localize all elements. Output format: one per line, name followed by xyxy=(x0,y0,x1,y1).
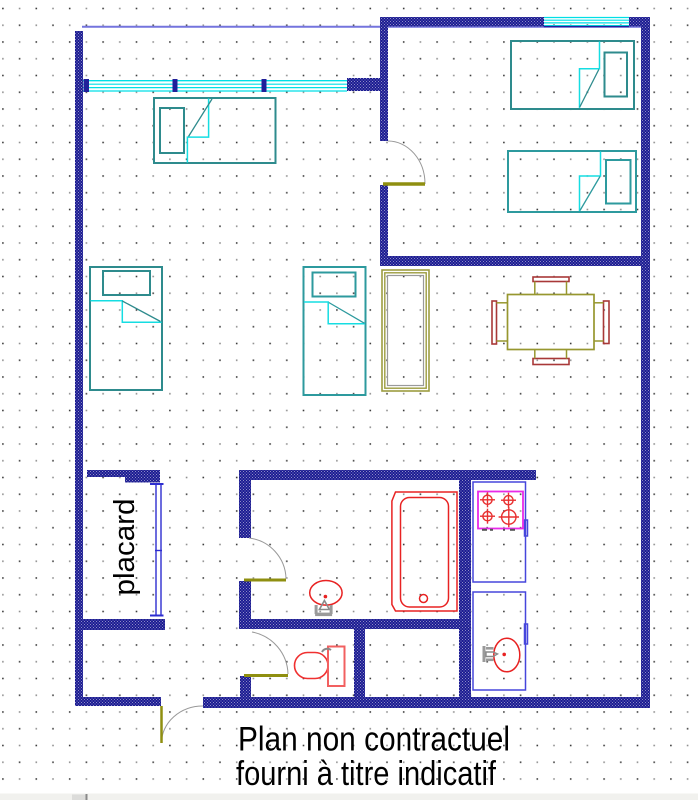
svg-text:placard: placard xyxy=(109,499,141,596)
svg-text:fourni à titre indicatif: fourni à titre indicatif xyxy=(236,755,496,793)
svg-text:Plan non contractuel: Plan non contractuel xyxy=(238,721,510,759)
